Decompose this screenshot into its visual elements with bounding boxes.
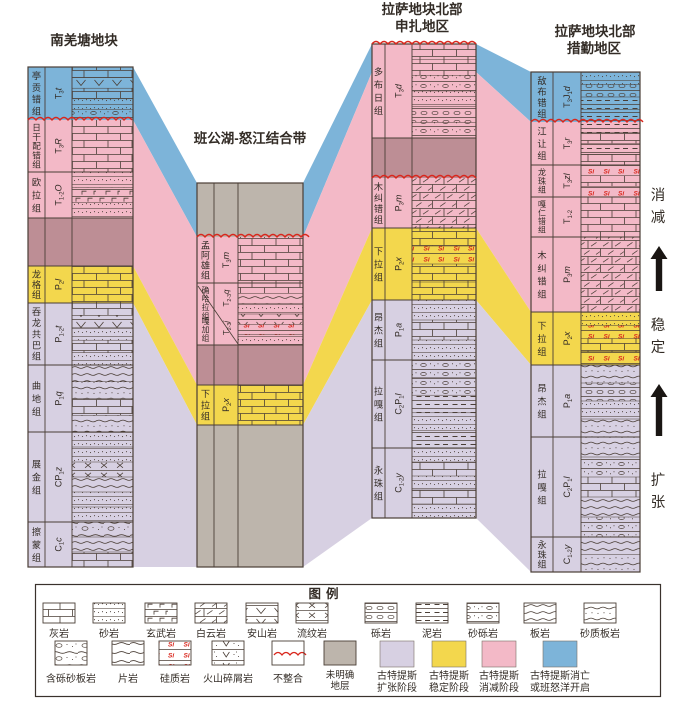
unit-name-char: 组: [374, 490, 383, 501]
lith-band-slate: [581, 497, 640, 517]
column-title: 措勤地区: [567, 40, 621, 56]
unit-name-char: 拉: [374, 258, 383, 269]
lith-band-limestone: [581, 477, 640, 497]
unit-name-char: 错: [374, 203, 383, 214]
unit-name-char: 共: [32, 329, 41, 339]
lith-band-conglomerate: [581, 85, 640, 98]
lith-band-mudstone: [581, 97, 640, 110]
unit-name-char: 组: [537, 346, 546, 357]
unit-name-char: 欧: [32, 176, 41, 187]
strat-unit: [197, 183, 303, 237]
annotation-subduction: 消: [651, 187, 666, 204]
lith-band-sandstone: [238, 304, 303, 314]
stage-label: 古特提斯: [377, 669, 417, 682]
lith-band-limestone: [412, 60, 476, 76]
unit-name-char: 错: [538, 216, 546, 226]
unit-name-char: 组: [537, 494, 546, 505]
lith-band-sandstone: [581, 401, 640, 419]
lith-band-sandy-slate: [581, 419, 640, 437]
legend-label: 灰岩: [49, 627, 69, 640]
lith-band-sandstone: [72, 328, 133, 340]
lith-band-sandstone: [412, 448, 476, 462]
unit-name-char: 昂: [374, 312, 383, 322]
legend-stage-pink: 古特提斯消减阶段: [479, 641, 519, 694]
unit-name-char: 敌: [537, 75, 546, 86]
unit-name-char: 组: [202, 333, 210, 343]
legend-item-sandstone: 砂岩: [93, 603, 125, 640]
lith-band-limestone: [72, 266, 133, 303]
lith-band-limestone: [412, 320, 476, 340]
unit-name-char: 组: [32, 552, 41, 563]
unit-name-char: 拉: [537, 468, 546, 479]
stage-swatch: [543, 641, 577, 667]
lith-band-sandy-slate: [581, 437, 640, 457]
unit-name-char: 让: [537, 139, 546, 149]
unit-name-char: 组: [537, 108, 546, 119]
unit-name-char: 拉: [374, 385, 383, 396]
up-arrow: [651, 384, 668, 436]
legend-label: 含砾砂板岩: [46, 672, 96, 685]
lith-band-sandstone: [412, 476, 476, 490]
lith-band-limestone: [72, 303, 133, 315]
legend-item-volcaniclastic: 火山碎屑岩: [203, 641, 253, 685]
unit-name-char: 下: [201, 389, 210, 399]
legend-item-schist: 片岩: [112, 641, 144, 685]
unit-name-char: 错: [32, 94, 41, 105]
lith-band-limestone: [72, 88, 133, 99]
lith-band-dolomite: [581, 237, 640, 312]
column-title: 拉萨地块北部: [382, 1, 463, 17]
lith-band-sandy-slate: [581, 555, 640, 573]
legend-label: 砂砾岩: [468, 627, 498, 640]
stage-label: 古特提斯消亡: [530, 669, 590, 682]
lith-band-slate: [238, 293, 303, 303]
lith-band-siliceous: [581, 186, 640, 197]
strat-unit: [197, 345, 303, 385]
unit-name-char: 珠: [538, 176, 546, 186]
legend-stage-lavender: 古特提斯扩张阶段: [377, 641, 417, 694]
unit-name-char: 永: [374, 464, 383, 475]
lith-band-mudstone: [581, 144, 640, 155]
legend-label: 未明确: [326, 669, 355, 681]
unit-name-char: 格: [32, 279, 41, 290]
annotation-expansion: 扩: [651, 472, 666, 489]
lith-band-sandstone: [72, 492, 133, 507]
lith-band-mudstone: [581, 122, 640, 133]
lith-band-limestone: [72, 67, 133, 78]
column-title: 申扎地区: [395, 18, 449, 34]
lith-band-sandstone: [581, 312, 640, 325]
stage-label: 或班怒洋开启: [530, 681, 590, 694]
annotation-expansion: 张: [651, 494, 666, 511]
lith-band-dolomite: [412, 178, 476, 228]
unit-name-char: 亭: [32, 70, 41, 81]
legend-label: 板岩: [530, 627, 550, 640]
legend-label: 地层: [330, 680, 349, 692]
lith-band-limestone: [238, 283, 303, 293]
stage-label: 古特提斯: [429, 669, 469, 682]
stage-label: 稳定阶段: [429, 681, 469, 694]
lith-band-limestone: [238, 237, 303, 283]
lith-band-limestone: [72, 120, 133, 172]
unit-name-char: 江: [537, 126, 546, 136]
lith-band-limestone: [581, 133, 640, 144]
unit-name-char: 组: [32, 158, 41, 169]
unit-name-char: 永: [537, 539, 546, 550]
unit-name-char: 组: [538, 185, 546, 195]
lith-band-sandstone: [412, 504, 476, 518]
legend-label: 白云岩: [196, 627, 226, 640]
lith-band-sandy-slate: [581, 365, 640, 383]
unit-name-char: 金: [32, 471, 41, 482]
stratigraphic-correlation-figure: SiSi亭贡错组T3t日干配错组T3R欧拉组T1-2O龙格组P2l吞龙共巴组P1…: [0, 0, 700, 702]
column-title: 班公湖-怒江结合带: [194, 130, 307, 146]
lith-band-sandstone: [412, 91, 476, 107]
unit-name-char: 下: [537, 321, 546, 331]
legend-item-unclear: 未明确地层: [324, 641, 356, 692]
unit-name-char: 错: [537, 275, 546, 286]
unit-name-char: 曲: [32, 381, 41, 391]
unit-name-char: 组: [32, 484, 41, 495]
unit-name-char: 布: [374, 79, 383, 90]
unit-name-char: 孟: [201, 240, 210, 250]
annotation-stable: 定: [651, 339, 666, 356]
lith-band-limestone: [412, 228, 476, 246]
legend-item-unconformity: 不整合: [272, 641, 306, 685]
lith-band-sandstone: [72, 172, 133, 187]
unit-name-char: 巴: [32, 341, 41, 351]
stratigraphic-column-lhasa-north-xainza: 多布日组T3d木纠错组P3m下拉组P2x昂杰组P1a拉嘎组C2P1l永珠组C1-…: [372, 1, 476, 518]
lith-band-sandy-conglomerate: [412, 378, 476, 396]
unit-name-char: 下: [374, 246, 383, 256]
lith-band-sandstone: [72, 432, 133, 447]
lith-band-sandstone: [72, 353, 133, 365]
up-arrow: [651, 246, 668, 291]
lith-band-mudstone: [412, 430, 476, 448]
unit-name-char: 纠: [374, 193, 383, 203]
legend-stage-blue: 古特提斯消亡或班怒洋开启: [530, 641, 590, 694]
unit-name-char: 组: [32, 289, 41, 300]
unit-name-char: 仁: [538, 208, 546, 218]
unit-name-char: 蒙: [32, 539, 41, 550]
unit-name-char: 确: [202, 285, 210, 295]
unit-name-char: 杰: [374, 324, 383, 335]
lith-band-sandy-conglomerate: [412, 75, 476, 91]
lith-band-conglomerate: [581, 383, 640, 401]
lith-band-sandstone: [72, 203, 133, 218]
legend-item-mudstone: 泥岩: [416, 603, 448, 640]
legend-item-siliceous: 硅质岩: [159, 641, 191, 685]
legend-label: 流纹岩: [297, 627, 327, 640]
lith-band-limestone: [412, 462, 476, 476]
lith-band-limestone: [412, 282, 476, 300]
legend-label: 安山岩: [247, 627, 277, 640]
legend-item-rhyolite: 流纹岩: [296, 603, 328, 640]
unit-name-char: 木: [537, 249, 546, 260]
strat-unit: [28, 218, 133, 266]
legend-label: 片岩: [118, 672, 138, 685]
unit-name-char: 加: [202, 325, 210, 335]
legend: 图例灰岩砂岩玄武岩白云岩安山岩流纹岩砾岩泥岩砂砾岩板岩砂质板岩含砾砂板岩片岩硅质…: [36, 585, 661, 697]
lith-band-slate: [72, 477, 133, 492]
unit-name-char: 布: [537, 86, 546, 97]
unit-name-char: 木: [374, 181, 383, 192]
unit-name-char: 拉: [32, 189, 41, 200]
legend-label: 不整合: [273, 672, 303, 685]
diagram-canvas: SiSi亭贡错组T3t日干配错组T3R欧拉组T1-2O龙格组P2l吞龙共巴组P1…: [0, 0, 700, 702]
legend-label: 泥岩: [422, 627, 442, 640]
unit-name-char: 组: [537, 558, 546, 569]
lith-band-andesite: [72, 315, 133, 327]
stage-swatch: [482, 641, 516, 667]
unit-name-char: 组: [374, 337, 383, 348]
lith-band-limestone: [412, 264, 476, 282]
lith-band-sandstone: [72, 447, 133, 462]
lith-band-limestone: [238, 385, 303, 425]
lith-band-slate: [72, 365, 133, 382]
lith-band-sandstone: [412, 413, 476, 431]
lith-band-basalt: [72, 187, 133, 202]
lith-band-sandstone: [412, 340, 476, 360]
stage-label: 消减阶段: [479, 681, 519, 694]
lith-band-siliceous: [581, 165, 640, 176]
unit-name-char: 组: [374, 411, 383, 422]
legend-item-sandy-slate: 砂质板岩: [580, 603, 620, 640]
unit-name-char: 组: [201, 269, 210, 280]
stage-label: 扩张阶段: [377, 681, 417, 694]
lith-band-sandy-conglomerate: [581, 457, 640, 477]
annotation-stable: 稳: [651, 317, 666, 334]
stratigraphic-column-lhasa-north-coqen: 敌布错组T3J1d江让组T3r龙珠组T3zl嘎仁错组T1-2木纠错组P3m下拉组…: [531, 23, 643, 572]
lith-band-siliceous: [412, 246, 476, 264]
unit-name-char: 组: [374, 214, 383, 225]
unit-name-char: 组: [538, 225, 546, 235]
lith-band-pebbly-sandy-slate: [72, 522, 133, 537]
unit-name-char: 拉: [202, 302, 210, 312]
strat-unit: [372, 138, 476, 178]
lith-band-limestone: [581, 176, 640, 187]
legend-label: 火山碎屑岩: [203, 672, 253, 685]
unit-name-char: 组: [32, 406, 41, 417]
unit-name-char: 日: [374, 93, 383, 103]
unit-name-char: 多: [374, 66, 383, 77]
lith-band-siliceous: [238, 324, 303, 334]
lith-band-sandy-slate: [72, 415, 133, 432]
unit-name-char: 组: [201, 411, 210, 422]
unit-name-char: 杰: [537, 395, 546, 406]
legend-item-pebbly-sandy-slate: 含砾砂板岩: [46, 641, 96, 685]
unit-name-char: 错: [537, 97, 546, 108]
legend-label: 砂岩: [99, 627, 119, 640]
legend-item-basalt: 玄武岩: [145, 603, 177, 640]
lith-band-limestone: [72, 340, 133, 352]
annotation-subduction: 减: [651, 209, 666, 226]
unit-name-char: 组: [32, 351, 41, 362]
unit-name-char: 珠: [537, 549, 546, 560]
unit-name-char: 雄: [201, 259, 210, 270]
unit-name-char: 龙: [32, 268, 41, 279]
lith-band-sandstone: [412, 300, 476, 320]
lith-band-limestone: [581, 339, 640, 352]
legend-label: 砾岩: [371, 627, 391, 640]
strat-unit: [197, 425, 303, 567]
unit-name-char: 龙: [538, 167, 546, 177]
legend-item-slate: 板岩: [524, 603, 556, 640]
lith-band-rhyolite: [72, 462, 133, 477]
unit-name-char: 擦: [32, 526, 41, 537]
unit-name-char: 展: [32, 459, 41, 469]
legend-label: 硅质岩: [160, 672, 190, 685]
legend-item-conglomerate: 砾岩: [365, 603, 397, 640]
unit-name-char: 纠: [537, 263, 546, 273]
lith-band-sandstone: [72, 507, 133, 522]
unit-name-char: 阿: [201, 250, 210, 260]
lith-band-sandy-conglomerate: [412, 122, 476, 138]
legend-title: 图例: [308, 586, 343, 601]
legend-label: 砂质板岩: [580, 627, 620, 640]
lith-band-sandy-conglomerate: [412, 360, 476, 378]
unit-name-char: 珠: [374, 477, 383, 488]
lith-band-sandstone: [238, 335, 303, 345]
lith-band-limestone: [72, 399, 133, 416]
tectonic-annotations: 消减稳定扩张: [651, 187, 668, 511]
lith-band-mudstone: [412, 395, 476, 413]
lith-band-limestone: [412, 44, 476, 60]
legend-item-sandy-conglomerate: 砂砾岩: [467, 603, 499, 640]
unit-name-char: 拉: [537, 333, 546, 344]
column-title: 拉萨地块北部: [555, 23, 636, 39]
lith-band-andesite: [72, 78, 133, 89]
unit-name-char: 嘎: [374, 399, 383, 409]
lith-band-sandstone: [72, 99, 133, 110]
unit-name-char: 拉: [201, 399, 210, 410]
lith-band-sandy-slate: [72, 382, 133, 399]
legend-stage-yellow: 古特提斯稳定阶段: [429, 641, 469, 694]
lith-band-andesite: [238, 314, 303, 324]
unit-name-char: 组: [537, 288, 546, 299]
unit-name-char: 组: [374, 271, 383, 282]
unit-name-char: 龙: [32, 317, 41, 328]
lith-band-limestone: [581, 154, 640, 165]
lith-band-conglomerate: [412, 107, 476, 123]
legend-label: 玄武岩: [146, 627, 176, 640]
lith-band-limestone: [581, 197, 640, 237]
stratigraphic-column-south-qiangtang: 亭贡错组T3t日干配错组T3R欧拉组T1-2O龙格组P2l吞龙共巴组P1-2t曲…: [28, 32, 133, 567]
unit-name-char: 嘎: [537, 482, 546, 492]
unit-name-char: 昂: [537, 383, 546, 393]
unit-name-char: 组: [537, 408, 546, 419]
lith-band-sandy-conglomerate: [581, 517, 640, 537]
stage-swatch: [380, 641, 414, 667]
legend-item-andesite: 安山岩: [246, 603, 278, 640]
stratigraphic-column-bangong-nujiang: 孟阿雄组T3m确哈拉组嘎加组T2-3qT2-3j下拉组P2x班公湖-怒江结合带: [194, 130, 309, 567]
lith-band-slate: [581, 537, 640, 555]
legend-item-dolomite: 白云岩: [195, 603, 227, 640]
column-title: 南羌塘地块: [50, 32, 118, 48]
lith-band-slate: [72, 537, 133, 552]
unit-name-char: 组: [537, 150, 546, 161]
stage-label: 古特提斯: [479, 669, 519, 682]
lith-band-siliceous: [581, 352, 640, 365]
unit-name-char: 组: [32, 105, 41, 116]
unit-name-char: 地: [32, 393, 41, 404]
lith-band-sandstone: [581, 72, 640, 85]
unit-name-char: 组: [32, 202, 41, 213]
unit-name-char: 吞: [32, 307, 41, 317]
unit-name-char: 贡: [32, 83, 41, 93]
lith-band-limestone: [72, 552, 133, 567]
lith-band-limestone: [412, 490, 476, 504]
lith-band-siliceous: [581, 325, 640, 338]
legend-item-limestone: 灰岩: [43, 603, 75, 640]
stage-swatch: [432, 641, 466, 667]
unit-name-char: 组: [374, 105, 383, 116]
unit-name-char: 哈: [202, 294, 210, 304]
